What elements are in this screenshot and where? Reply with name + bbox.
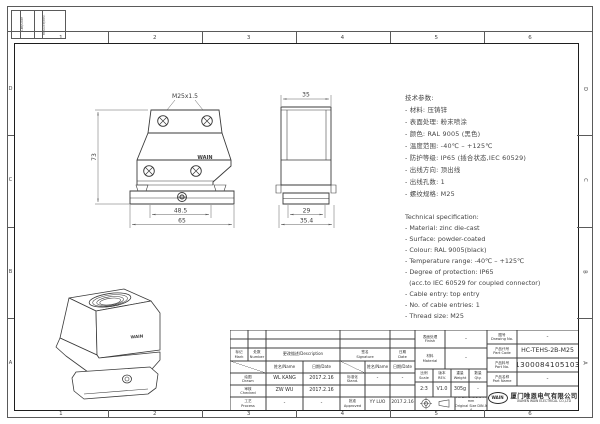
cell-weight-value: 305g xyxy=(451,382,469,397)
cell-part-no-label: 产品料号Part No. xyxy=(487,358,517,372)
spec-line-cn: - 防护等级: IP65 (插合状态,IEC 60529) xyxy=(405,152,526,164)
cell-scale-label: 比例Scale xyxy=(415,369,433,382)
cell-qty-label: 数量Qty. xyxy=(469,369,487,382)
side-view xyxy=(276,107,336,204)
spec-line-en: - Material: zinc die-cast xyxy=(405,223,540,234)
spec-line-en: - Cable entry: top entry xyxy=(405,289,540,300)
iso-view: WAIN xyxy=(56,289,160,399)
spec-block-cn: 技术参数:- 材料: 压铸锌- 表面处理: 粉末喷涂- 颜色: RAL 9005… xyxy=(405,92,526,200)
cell-finish-label: 表面处理Finish xyxy=(415,330,445,348)
cell-drawn-label: 绘图Drawn xyxy=(230,373,266,385)
title-block: 标记Mark 处数Number 更改描述/Description 签名Signa… xyxy=(230,330,578,410)
spec-line-en: - Thread size: M25 xyxy=(405,311,540,322)
cell-number-label: 处数Number xyxy=(248,348,266,361)
dim-side-outer: 35.4 xyxy=(300,218,314,225)
cell-drawn-name: WL KANG xyxy=(266,373,303,385)
spec-line-cn: - 温度范围: -40℃ – +125℃ xyxy=(405,140,526,152)
cell-rev-label: 版本REV. xyxy=(433,369,451,382)
spec-line-en: - No. of cable entries: 1 xyxy=(405,300,540,311)
cell-stand-date: - xyxy=(390,373,415,385)
spec-line-en: Technical specification: xyxy=(405,212,540,223)
cell-approved-date: 2017.2.16 xyxy=(390,397,415,410)
cell-weight-label: 重量Weight xyxy=(451,369,469,382)
cell-checked-name: ZW WU xyxy=(266,385,303,397)
projection-symbol-cell xyxy=(415,397,455,410)
cell-name2-header: 姓名/Name xyxy=(365,361,390,373)
cell-finish-value: - xyxy=(445,330,487,348)
spec-line-cn: 技术参数: xyxy=(405,92,526,104)
spec-line-cn: - 出线方向: 顶出线 xyxy=(405,164,526,176)
wain-logo: WAIN xyxy=(488,392,508,404)
spec-line-cn: - 材料: 压铸锌 xyxy=(405,104,526,116)
cell-material-value: - xyxy=(445,348,487,369)
cell-part-code-label: 产品代号Part Code xyxy=(487,344,517,358)
spec-line-en: - Temperature range: -40℃ – +125℃ xyxy=(405,256,540,267)
cell-stand-label: 标准化Stand. xyxy=(340,373,365,385)
cell-date1-header: 日期/Date xyxy=(303,361,340,373)
company-name: 厦门唯恩电气有限公司 XIAMEN WAIN ELECTRICAL CO.,LT… xyxy=(511,393,578,404)
dim-thread: M25x1.5 xyxy=(172,93,198,100)
spec-line-cn: - 螺纹规格: M25 xyxy=(405,188,526,200)
spec-line-en: (acc.to IEC 60529 for coupled connector) xyxy=(405,278,540,289)
cell-name1-header: 姓名/Name xyxy=(266,361,303,373)
company-name-en: XIAMEN WAIN ELECTRICAL CO.,LTD xyxy=(511,400,578,403)
cell-approved-name: YY LUO xyxy=(365,397,390,410)
company-cell: WAIN 厦门唯恩电气有限公司 XIAMEN WAIN ELECTRICAL C… xyxy=(487,386,578,410)
dimension-note: All Dimensions in mmOriginal Size DIN A … xyxy=(455,397,487,410)
spec-block-en: Technical specification:- Material: zinc… xyxy=(405,212,540,322)
cell-part-code-value: HC-TEHS-2B-M25 xyxy=(517,344,578,358)
drawing-sheet: 123456 123456 DCBA DCBA 日期/Date 更改记录/Rev… xyxy=(0,0,600,424)
cell-date2-header: 日期/Date xyxy=(390,361,415,373)
dim-width-inner: 48.5 xyxy=(174,208,188,215)
cell-approved-label: 批准Approved xyxy=(340,397,365,410)
cell-drawing-no-value: - xyxy=(517,330,578,344)
cell-rev-value: V1.0 xyxy=(433,382,451,397)
cell-stand-name: - xyxy=(365,373,390,385)
cell-process-date: - xyxy=(303,397,340,410)
spec-line-en: - Degree of protection: IP65 xyxy=(405,267,540,278)
front-brand-label: WAIN xyxy=(197,155,212,161)
cell-scale-value: 2:3 xyxy=(415,382,433,397)
cell-qty-value: - xyxy=(469,382,487,397)
dim-side-top: 35 xyxy=(302,92,310,99)
spec-line-cn: - 颜色: RAL 9005 (黑色) xyxy=(405,128,526,140)
cell-description-label: 更改描述/Description xyxy=(266,348,340,361)
dim-height: 73 xyxy=(91,153,98,161)
dim-side-inner: 29 xyxy=(303,208,311,215)
cell-process-name: - xyxy=(266,397,303,410)
front-view: WAIN xyxy=(130,110,234,204)
cell-checked-label: 审核Checked xyxy=(230,385,266,397)
cell-mark-label: 标记Mark xyxy=(230,348,248,361)
cell-part-name-value: - xyxy=(517,372,578,386)
cell-drawing-no-label: 图号Drawing No. xyxy=(487,330,517,344)
spec-line-en: - Surface: powder-coated xyxy=(405,234,540,245)
cell-material-label: 材料Material xyxy=(415,348,445,369)
cell-checked-date: 2017.2.16 xyxy=(303,385,340,397)
cell-drawn-date: 2017.2.16 xyxy=(303,373,340,385)
cell-part-no-value: 1300084105103 xyxy=(517,358,578,372)
dim-width-outer: 65 xyxy=(178,218,186,225)
cell-part-name-label: 产品名称Part Name xyxy=(487,372,517,386)
first-angle-projection-icon xyxy=(415,397,455,410)
cell-signature-label: 签名Signature xyxy=(340,348,390,361)
spec-line-cn: - 出线孔数: 1 xyxy=(405,176,526,188)
cell-date-label: 日期Date xyxy=(390,348,415,361)
spec-line-cn: - 表面处理: 粉末喷涂 xyxy=(405,116,526,128)
spec-line-en: - Colour: RAL 9005(black) xyxy=(405,245,540,256)
cell-process-label: 工艺Process xyxy=(230,397,266,410)
